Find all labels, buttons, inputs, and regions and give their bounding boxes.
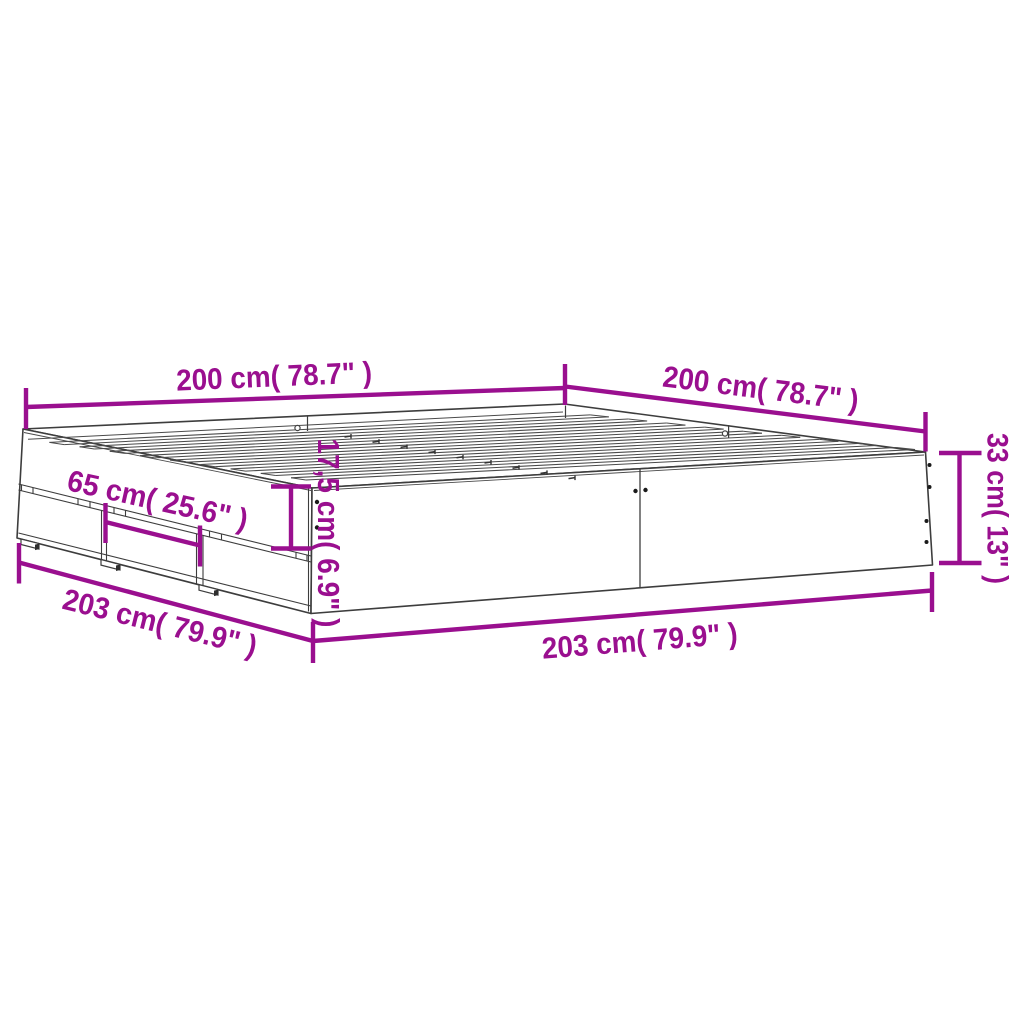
svg-text:17,5 cm( 6.9" ): 17,5 cm( 6.9" ) (311, 439, 346, 628)
svg-text:33 cm( 13" ): 33 cm( 13" ) (981, 433, 1014, 584)
